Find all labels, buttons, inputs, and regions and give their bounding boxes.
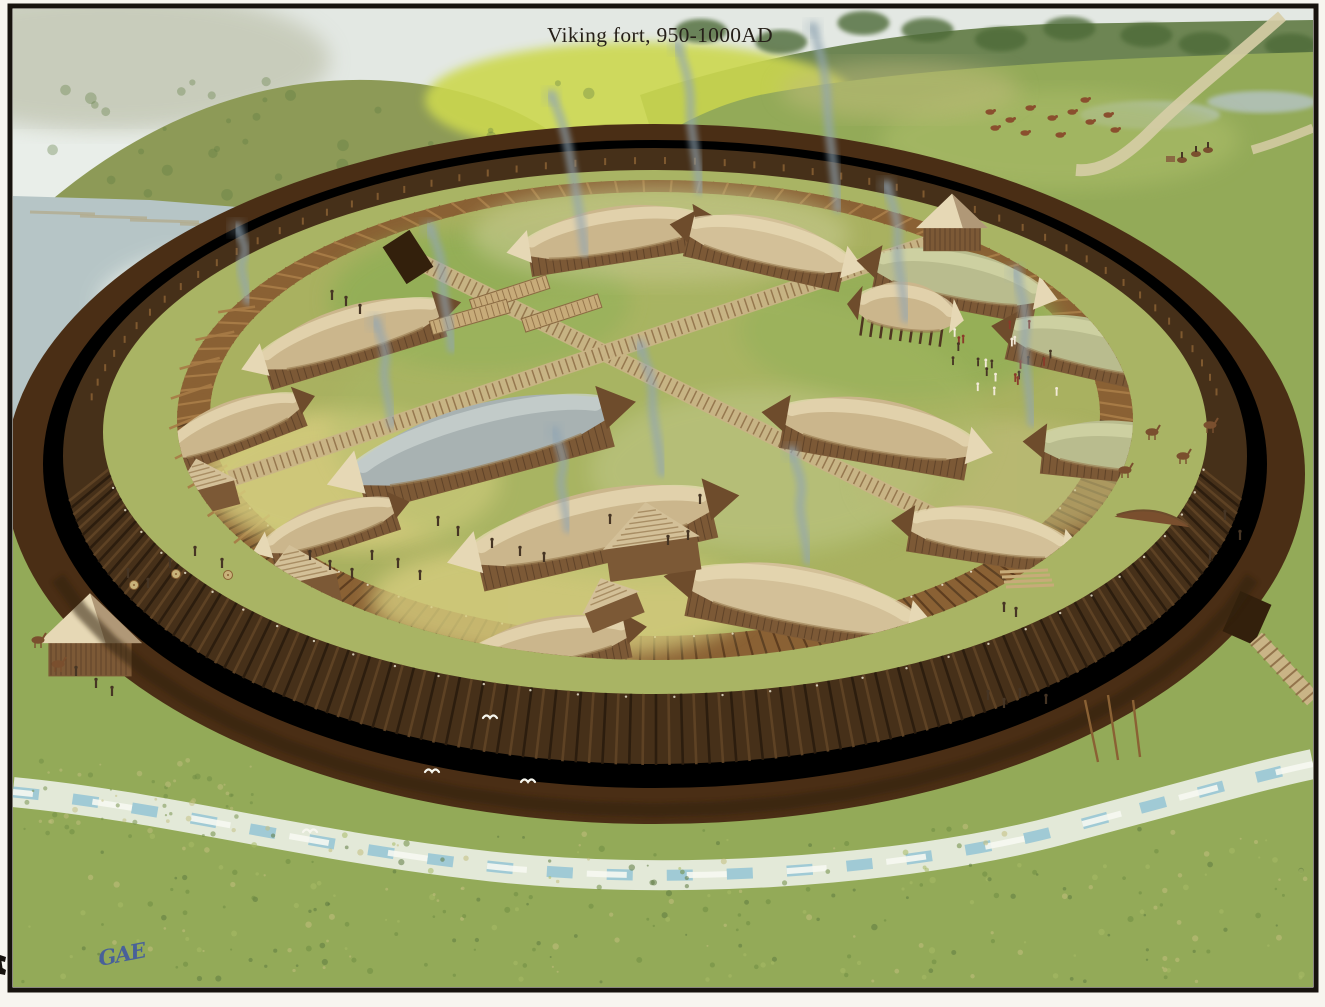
book-page: Viking fort, 950-1000AD GAE [0,0,1325,1007]
log-pile [1000,570,1048,572]
round-shield [224,571,233,580]
log-pile [1004,580,1052,582]
painting: Viking fort, 950-1000AD GAE [0,0,1317,990]
log-pile [1006,585,1054,587]
caption-title: Viking fort, 950-1000AD [547,23,773,47]
round-shield [130,581,139,590]
wagon [1166,156,1175,162]
round-shield [172,570,181,579]
viking-fort-illustration: Viking fort, 950-1000AD GAE [0,0,1325,1007]
log-pile [1002,575,1050,577]
